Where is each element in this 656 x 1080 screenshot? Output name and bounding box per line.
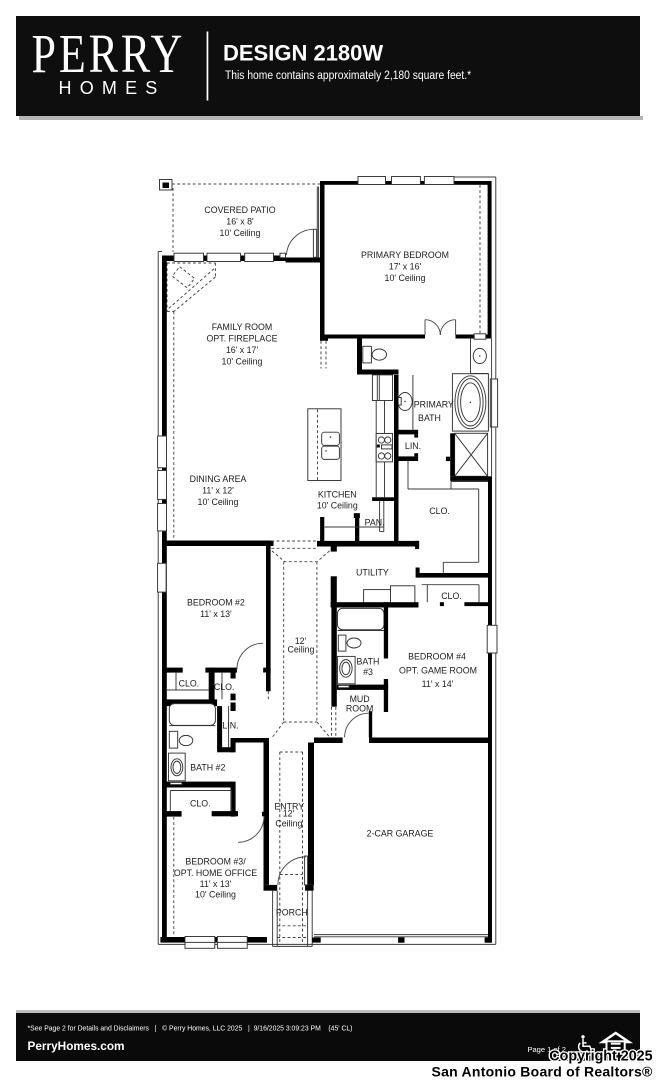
svg-text:BEDROOM #3/: BEDROOM #3/	[185, 856, 246, 866]
svg-text:San Antonio Board of Realtors®: San Antonio Board of Realtors®	[432, 1064, 654, 1080]
svg-text:COVERED PATIO: COVERED PATIO	[204, 205, 275, 215]
svg-text:12': 12'	[283, 808, 295, 818]
svg-text:BATH: BATH	[418, 413, 441, 423]
svg-text:DINING AREA: DINING AREA	[190, 474, 248, 484]
svg-text:KITCHEN: KITCHEN	[318, 489, 357, 499]
svg-text:BEDROOM #2: BEDROOM #2	[187, 597, 245, 607]
svg-text:PRIMARY BEDROOM: PRIMARY BEDROOM	[361, 250, 449, 260]
svg-text:CLO.: CLO.	[441, 591, 462, 601]
svg-text:#3: #3	[363, 667, 373, 677]
svg-text:OPT. FIREPLACE: OPT. FIREPLACE	[206, 333, 277, 343]
svg-text:10' Ceiling: 10' Ceiling	[198, 497, 239, 507]
svg-text:*See Page 2 for Details and Di: *See Page 2 for Details and Disclaimers …	[28, 1023, 353, 1032]
svg-text:Ceiling: Ceiling	[275, 818, 302, 828]
svg-text:10' Ceiling: 10' Ceiling	[195, 889, 236, 899]
svg-text:This home contains approximate: This home contains approximately 2,180 s…	[225, 69, 472, 82]
svg-text:CLO.: CLO.	[429, 506, 450, 516]
svg-text:11' x 12': 11' x 12'	[202, 485, 234, 495]
svg-text:FAMILY ROOM: FAMILY ROOM	[212, 322, 272, 332]
svg-text:17' x 16': 17' x 16'	[389, 261, 422, 271]
svg-text:OPT. HOME OFFICE: OPT. HOME OFFICE	[174, 868, 257, 878]
svg-text:Copyright 2025: Copyright 2025	[549, 1048, 652, 1064]
svg-text:LIN.: LIN.	[405, 441, 421, 451]
svg-text:Ceiling: Ceiling	[288, 644, 315, 654]
svg-text:PERRY: PERRY	[32, 23, 186, 84]
svg-text:11' x 13': 11' x 13'	[200, 879, 232, 889]
svg-text:10' Ceiling: 10' Ceiling	[222, 356, 263, 366]
svg-text:PerryHomes.com: PerryHomes.com	[28, 1039, 125, 1053]
svg-text:CLO.: CLO.	[214, 682, 235, 692]
svg-text:ROOM: ROOM	[346, 703, 373, 713]
svg-text:BEDROOM #4: BEDROOM #4	[408, 651, 466, 661]
svg-text:BATH #2: BATH #2	[190, 762, 225, 772]
svg-text:10' Ceiling: 10' Ceiling	[385, 273, 426, 283]
svg-text:OPT. GAME ROOM: OPT. GAME ROOM	[399, 665, 477, 675]
svg-text:10' Ceiling: 10' Ceiling	[317, 500, 358, 510]
svg-text:BATH: BATH	[357, 656, 380, 666]
svg-text:2-CAR GARAGE: 2-CAR GARAGE	[367, 828, 434, 838]
svg-text:CLO.: CLO.	[190, 798, 211, 808]
svg-text:UTILITY: UTILITY	[356, 567, 389, 577]
svg-text:LIN.: LIN.	[222, 720, 238, 730]
svg-text:HOMES: HOMES	[59, 78, 166, 98]
svg-text:16' x 8': 16' x 8'	[226, 216, 254, 226]
svg-text:CLO.: CLO.	[179, 678, 200, 688]
svg-text:PRIMARY: PRIMARY	[414, 399, 454, 409]
svg-text:16' x 17': 16' x 17'	[226, 345, 259, 355]
svg-text:PORCH: PORCH	[276, 907, 308, 917]
svg-text:11' x 14': 11' x 14'	[422, 679, 454, 689]
svg-text:PAN.: PAN.	[365, 517, 385, 527]
svg-text:10' Ceiling: 10' Ceiling	[220, 228, 261, 238]
svg-text:11' x 13': 11' x 13'	[200, 609, 232, 619]
svg-text:DESIGN 2180W: DESIGN 2180W	[223, 41, 383, 66]
